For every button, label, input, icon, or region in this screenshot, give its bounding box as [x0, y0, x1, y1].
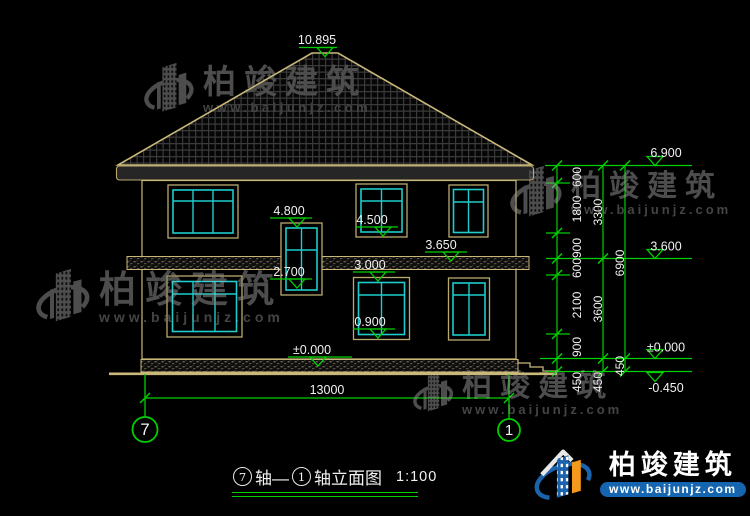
overall-width-label: 13000 [310, 383, 345, 397]
title-name: 轴立面图 [314, 464, 382, 489]
dim-label: 600 [570, 167, 584, 187]
dim-label: 1800 [570, 195, 584, 222]
title-underline [232, 492, 418, 497]
eave-fascia [117, 166, 534, 180]
marker-minus-0450 [643, 372, 692, 382]
ground-right-elevation-label: ±0.000 [647, 341, 685, 355]
axis-number-7: 7 [140, 420, 149, 439]
belt-right-elevation-label: 3.600 [650, 240, 681, 254]
window-1f-middle [354, 278, 410, 340]
window-2f-right [449, 185, 488, 237]
lower-sill-elevation-label: 0.900 [354, 315, 385, 329]
dim-label: 3300 [591, 198, 605, 225]
dimension-chains [540, 161, 643, 377]
window-1f-right [449, 278, 490, 340]
dim-label: 2100 [570, 291, 584, 318]
window-2f-left [168, 185, 238, 238]
dim-label: 6900 [613, 249, 627, 276]
lower-head-elevation-label: 3.000 [354, 258, 385, 272]
dim-label: 600 [570, 258, 584, 278]
brand-logo-icon [533, 440, 595, 506]
window-1f-left [167, 276, 242, 337]
title-axis-join: 轴— [255, 464, 289, 489]
dim-label: 3600 [591, 295, 605, 322]
dim-label: 450 [613, 356, 627, 376]
title-scale: 1:100 [396, 469, 437, 485]
belt-left-elevation-label: 3.650 [425, 238, 456, 252]
plinth-band [141, 360, 518, 373]
dim-label: 450 [591, 372, 605, 392]
hipped-roof [118, 53, 532, 165]
house-elevation [109, 53, 557, 375]
brand-footer: 柏竣建筑 www.baijunjz.com [533, 440, 746, 506]
dim-label: 450 [570, 372, 584, 392]
drawing-title: 7 轴— 1 轴立面图 1:100 [232, 464, 437, 497]
stair-head-elevation-label: 4.800 [273, 204, 304, 218]
window-staircase [281, 223, 322, 295]
entrance-steps [518, 359, 556, 375]
drawing-layer: 10.895 4.800 4.500 3.650 2.700 3.000 0.9… [0, 0, 750, 516]
ground-left-elevation-label: ±0.000 [293, 343, 331, 357]
title-axis-end-bubble: 1 [292, 467, 311, 486]
title-axis-start-bubble: 7 [233, 467, 252, 486]
axis-number-1: 1 [505, 422, 513, 439]
foundation-elevation-label: -0.450 [648, 381, 683, 395]
stair-sill-elevation-label: 2.700 [273, 265, 304, 279]
upper-sill-elevation-label: 4.500 [356, 213, 387, 227]
brand-name: 柏竣建筑 [609, 449, 737, 481]
dim-label: 900 [570, 337, 584, 357]
brand-url: www.baijunjz.com [600, 482, 746, 497]
floor-belt-band [127, 257, 529, 270]
ridge-elevation-label: 10.895 [298, 33, 336, 47]
elevation-drawing: 10.895 4.800 4.500 3.650 2.700 3.000 0.9… [0, 0, 750, 516]
window-2f-middle [356, 184, 407, 237]
eave-elevation-label: 6.900 [650, 146, 681, 160]
dim-label: 900 [570, 238, 584, 258]
